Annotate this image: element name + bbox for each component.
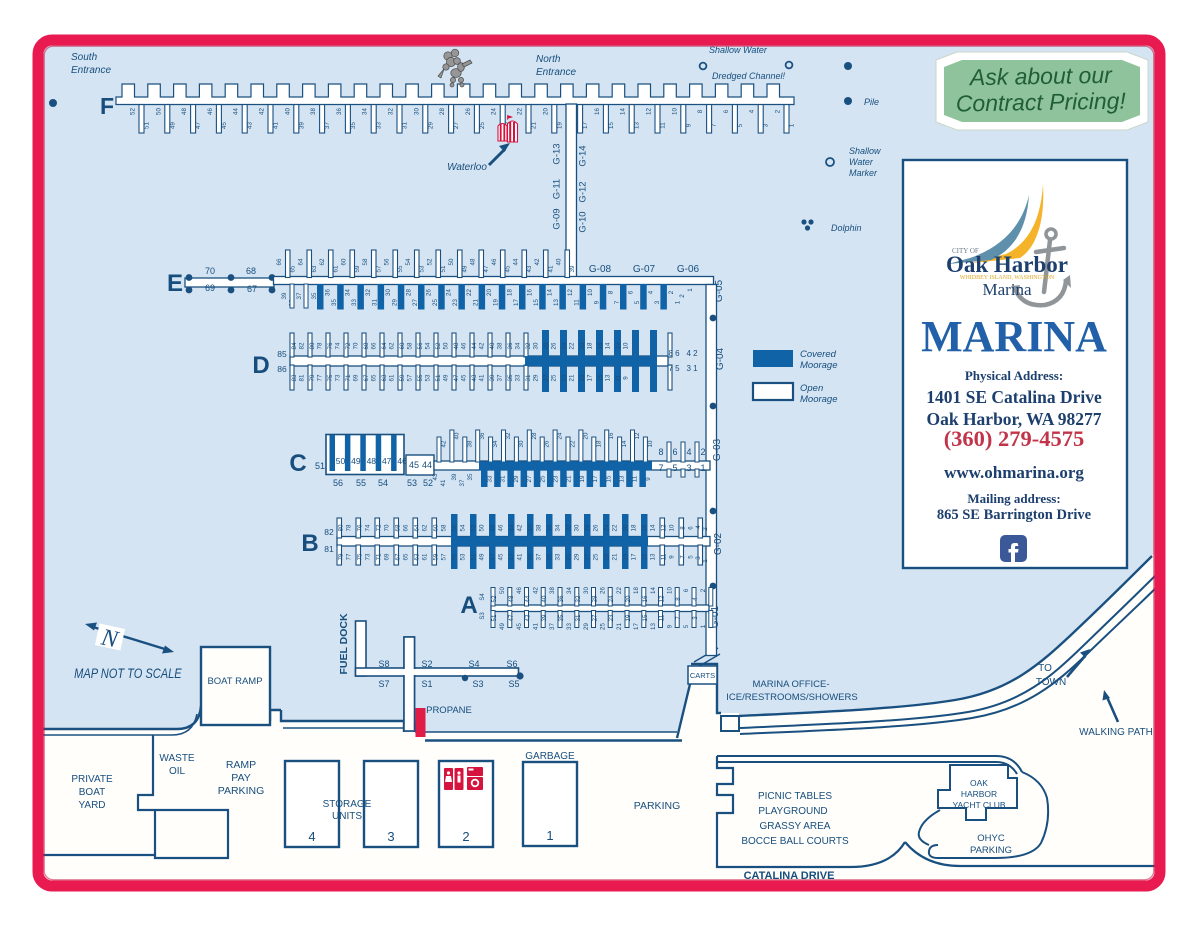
svg-text:39: 39 — [489, 374, 496, 381]
svg-text:17: 17 — [513, 299, 520, 306]
svg-text:17: 17 — [592, 475, 599, 482]
svg-text:64: 64 — [414, 524, 421, 531]
svg-text:23: 23 — [604, 553, 611, 560]
svg-text:ICE/RESTROOMS/SHOWERS: ICE/RESTROOMS/SHOWERS — [726, 692, 857, 703]
svg-text:55: 55 — [417, 374, 424, 381]
svg-text:39: 39 — [298, 122, 305, 129]
svg-text:37: 37 — [497, 374, 504, 381]
svg-text:62: 62 — [319, 258, 326, 265]
svg-text:56: 56 — [417, 342, 424, 349]
svg-text:7: 7 — [680, 555, 687, 559]
svg-text:TO: TO — [1038, 663, 1052, 674]
svg-text:22: 22 — [517, 108, 524, 115]
svg-text:6: 6 — [672, 447, 677, 457]
svg-text:G-13: G-13 — [552, 143, 563, 164]
svg-text:24: 24 — [608, 595, 615, 602]
svg-text:47: 47 — [453, 374, 460, 381]
svg-text:64: 64 — [298, 258, 305, 265]
svg-text:64: 64 — [381, 342, 388, 349]
svg-text:33: 33 — [555, 553, 562, 560]
svg-text:G-04: G-04 — [715, 347, 726, 370]
svg-text:56: 56 — [452, 524, 459, 531]
svg-text:26: 26 — [544, 440, 551, 447]
svg-text:11: 11 — [659, 614, 666, 621]
svg-text:32: 32 — [388, 108, 395, 115]
svg-text:1: 1 — [546, 828, 553, 843]
svg-text:29: 29 — [392, 299, 399, 306]
svg-text:60: 60 — [399, 342, 406, 349]
svg-text:34: 34 — [492, 440, 499, 447]
svg-text:2: 2 — [775, 109, 782, 113]
svg-text:2: 2 — [700, 588, 707, 592]
svg-text:81: 81 — [324, 544, 334, 554]
svg-text:17: 17 — [582, 122, 589, 129]
svg-text:48: 48 — [181, 108, 188, 115]
svg-text:33: 33 — [566, 623, 573, 630]
svg-text:58: 58 — [407, 342, 414, 349]
svg-text:26: 26 — [593, 524, 600, 531]
svg-text:12: 12 — [615, 342, 622, 349]
svg-text:83: 83 — [291, 374, 298, 381]
svg-text:82: 82 — [299, 342, 306, 349]
svg-text:Ask about our: Ask about our — [968, 62, 1114, 91]
svg-text:FUEL DOCK: FUEL DOCK — [338, 613, 350, 674]
svg-text:42: 42 — [517, 524, 524, 531]
svg-text:30: 30 — [574, 524, 581, 531]
svg-text:31: 31 — [402, 122, 409, 129]
svg-text:Open: Open — [800, 383, 823, 394]
svg-text:61: 61 — [333, 265, 340, 272]
svg-text:WALKING PATH: WALKING PATH — [1079, 727, 1153, 738]
svg-text:12: 12 — [646, 108, 653, 115]
svg-text:YARD: YARD — [78, 800, 105, 811]
svg-text:PARKING: PARKING — [634, 800, 680, 812]
svg-text:MAP NOT TO SCALE: MAP NOT TO SCALE — [74, 666, 182, 681]
svg-text:62: 62 — [422, 524, 429, 531]
svg-text:2: 2 — [679, 294, 686, 298]
svg-text:54: 54 — [405, 258, 412, 265]
svg-text:28: 28 — [592, 595, 599, 602]
svg-text:E: E — [167, 270, 183, 297]
svg-text:11: 11 — [615, 374, 622, 381]
svg-text:28: 28 — [439, 108, 446, 115]
svg-text:30: 30 — [518, 440, 525, 447]
svg-text:20: 20 — [582, 432, 589, 439]
svg-text:40: 40 — [541, 595, 548, 602]
svg-text:45: 45 — [221, 122, 228, 129]
svg-text:42: 42 — [533, 587, 540, 594]
svg-text:31: 31 — [566, 553, 573, 560]
svg-text:50: 50 — [479, 524, 486, 531]
svg-text:31: 31 — [575, 614, 582, 621]
svg-text:GARBAGE: GARBAGE — [525, 751, 575, 762]
svg-text:57: 57 — [407, 374, 414, 381]
svg-text:HARBOR: HARBOR — [961, 789, 997, 799]
svg-text:40: 40 — [489, 342, 496, 349]
svg-text:35: 35 — [350, 122, 357, 129]
svg-text:43: 43 — [432, 473, 439, 480]
svg-text:47: 47 — [490, 553, 497, 560]
svg-text:9: 9 — [594, 300, 601, 304]
svg-text:13: 13 — [650, 623, 657, 630]
svg-text:36: 36 — [507, 342, 514, 349]
svg-text:55: 55 — [356, 478, 366, 488]
svg-text:51: 51 — [491, 614, 498, 621]
svg-text:38: 38 — [536, 524, 543, 531]
svg-text:21: 21 — [472, 299, 479, 306]
svg-text:1: 1 — [700, 624, 707, 628]
svg-text:38: 38 — [466, 440, 473, 447]
svg-text:12: 12 — [567, 289, 574, 296]
svg-text:39: 39 — [541, 614, 548, 621]
svg-text:63: 63 — [311, 265, 318, 272]
svg-text:44: 44 — [471, 342, 478, 349]
svg-text:6: 6 — [683, 588, 690, 592]
svg-text:OIL: OIL — [169, 766, 186, 777]
svg-text:WASTE: WASTE — [159, 753, 195, 764]
svg-text:S3: S3 — [480, 612, 486, 620]
svg-text:47: 47 — [382, 456, 392, 466]
svg-text:35: 35 — [331, 299, 338, 306]
svg-text:18: 18 — [506, 289, 513, 296]
svg-text:North: North — [536, 54, 561, 65]
svg-text:26: 26 — [600, 587, 607, 594]
svg-text:PARKING: PARKING — [970, 845, 1012, 856]
svg-text:70: 70 — [384, 524, 391, 531]
svg-text:76: 76 — [327, 342, 334, 349]
svg-text:14: 14 — [621, 440, 628, 447]
svg-text:40: 40 — [528, 524, 535, 531]
svg-text:20: 20 — [579, 342, 586, 349]
svg-text:39: 39 — [281, 292, 288, 299]
svg-text:35: 35 — [311, 292, 318, 299]
svg-text:66: 66 — [403, 524, 410, 531]
svg-text:44: 44 — [525, 595, 532, 602]
svg-text:C: C — [289, 450, 306, 477]
svg-text:36: 36 — [547, 524, 554, 531]
svg-text:22: 22 — [466, 289, 473, 296]
svg-text:3: 3 — [654, 300, 661, 304]
svg-text:3 1: 3 1 — [686, 364, 698, 373]
svg-text:35: 35 — [467, 473, 474, 480]
svg-text:4: 4 — [648, 290, 655, 294]
svg-text:45: 45 — [461, 374, 468, 381]
svg-text:54: 54 — [378, 478, 388, 488]
svg-text:Moorage: Moorage — [800, 360, 838, 371]
svg-text:3: 3 — [695, 556, 702, 560]
svg-text:65: 65 — [403, 553, 410, 560]
svg-text:Marina: Marina — [982, 280, 1032, 299]
svg-text:47: 47 — [195, 122, 202, 129]
svg-text:11: 11 — [660, 122, 667, 129]
svg-text:8: 8 — [607, 290, 614, 294]
svg-text:23: 23 — [561, 374, 568, 381]
svg-text:Shallow: Shallow — [849, 146, 881, 156]
svg-text:22: 22 — [569, 342, 576, 349]
svg-text:8: 8 — [680, 526, 687, 530]
svg-text:31: 31 — [371, 299, 378, 306]
svg-text:14: 14 — [547, 289, 554, 296]
svg-text:62: 62 — [389, 342, 396, 349]
svg-text:G-07: G-07 — [633, 264, 656, 275]
svg-text:55: 55 — [397, 265, 404, 272]
svg-text:G-08: G-08 — [589, 264, 612, 275]
svg-text:43: 43 — [471, 374, 478, 381]
svg-text:14: 14 — [650, 524, 657, 531]
svg-text:38: 38 — [497, 342, 504, 349]
svg-text:45: 45 — [516, 623, 523, 630]
svg-text:3: 3 — [686, 463, 691, 473]
svg-text:34: 34 — [555, 524, 562, 531]
svg-text:10: 10 — [671, 108, 678, 115]
svg-text:67: 67 — [247, 284, 257, 294]
svg-text:61: 61 — [389, 374, 396, 381]
svg-text:BOAT RAMP: BOAT RAMP — [207, 676, 262, 687]
svg-text:68: 68 — [246, 266, 256, 276]
svg-text:YACHT CLUB: YACHT CLUB — [952, 800, 1005, 810]
svg-text:G-11: G-11 — [552, 179, 563, 199]
svg-text:71: 71 — [376, 553, 383, 560]
svg-text:B: B — [301, 530, 318, 557]
svg-text:16: 16 — [527, 289, 534, 296]
svg-text:TOWN: TOWN — [1036, 677, 1066, 688]
svg-text:7: 7 — [711, 123, 718, 127]
svg-text:37: 37 — [296, 292, 303, 299]
svg-text:55: 55 — [452, 553, 459, 560]
svg-text:50: 50 — [336, 456, 346, 466]
svg-text:16: 16 — [642, 524, 649, 531]
svg-text:27: 27 — [412, 299, 419, 306]
svg-text:G-10: G-10 — [578, 211, 589, 232]
svg-text:33: 33 — [515, 374, 522, 381]
svg-text:28: 28 — [405, 289, 412, 296]
svg-text:S2: S2 — [421, 659, 432, 669]
svg-text:Water: Water — [849, 157, 874, 167]
svg-text:5: 5 — [672, 463, 677, 473]
svg-text:27: 27 — [453, 122, 460, 129]
svg-text:2: 2 — [702, 527, 709, 531]
svg-text:40: 40 — [556, 258, 563, 265]
svg-text:49: 49 — [499, 623, 506, 630]
svg-text:31: 31 — [500, 475, 507, 482]
svg-text:45: 45 — [498, 553, 505, 560]
svg-text:48: 48 — [470, 258, 477, 265]
svg-text:GRASSY AREA: GRASSY AREA — [760, 821, 831, 832]
svg-text:20: 20 — [623, 524, 630, 531]
svg-text:18: 18 — [595, 440, 602, 447]
svg-text:74: 74 — [365, 524, 372, 531]
svg-text:20: 20 — [542, 108, 549, 115]
svg-text:36: 36 — [336, 108, 343, 115]
svg-text:26: 26 — [426, 289, 433, 296]
svg-text:41: 41 — [273, 122, 280, 129]
svg-text:5: 5 — [688, 555, 695, 559]
svg-text:4: 4 — [686, 447, 691, 457]
svg-text:19: 19 — [623, 553, 630, 560]
svg-text:25: 25 — [593, 553, 600, 560]
svg-text:23: 23 — [452, 299, 459, 306]
svg-text:32: 32 — [525, 342, 532, 349]
svg-text:4: 4 — [749, 109, 756, 113]
svg-text:Physical Address:: Physical Address: — [965, 368, 1063, 383]
svg-text:65: 65 — [290, 265, 297, 272]
svg-text:5: 5 — [683, 624, 690, 628]
svg-text:17: 17 — [633, 623, 640, 630]
svg-text:68: 68 — [363, 342, 370, 349]
svg-text:41: 41 — [517, 553, 524, 560]
svg-text:37: 37 — [536, 553, 543, 560]
svg-text:74: 74 — [335, 342, 342, 349]
svg-text:10: 10 — [587, 289, 594, 296]
svg-text:36: 36 — [325, 289, 332, 296]
svg-text:Contract Pricing!: Contract Pricing! — [956, 88, 1127, 117]
svg-text:25: 25 — [479, 122, 486, 129]
svg-text:UNITS: UNITS — [332, 811, 362, 822]
svg-text:84: 84 — [291, 342, 298, 349]
svg-text:71: 71 — [345, 374, 352, 381]
svg-text:OAK: OAK — [970, 778, 988, 788]
svg-text:40: 40 — [453, 432, 460, 439]
svg-text:80: 80 — [338, 524, 345, 531]
svg-text:49: 49 — [462, 265, 469, 272]
svg-text:11: 11 — [573, 299, 580, 306]
svg-text:10: 10 — [623, 342, 630, 349]
svg-text:63: 63 — [414, 553, 421, 560]
svg-text:5: 5 — [737, 123, 744, 127]
svg-text:12: 12 — [659, 595, 666, 602]
svg-text:9: 9 — [669, 555, 676, 559]
svg-text:(360) 279-4575: (360) 279-4575 — [944, 426, 1085, 451]
svg-text:S4: S4 — [468, 659, 479, 669]
svg-text:4: 4 — [308, 829, 315, 844]
svg-text:47: 47 — [483, 265, 490, 272]
svg-text:27: 27 — [543, 374, 550, 381]
svg-text:21: 21 — [566, 475, 573, 482]
svg-text:14: 14 — [620, 108, 627, 115]
svg-text:43: 43 — [509, 553, 516, 560]
svg-text:23: 23 — [608, 614, 615, 621]
svg-text:Pile: Pile — [864, 97, 879, 107]
svg-text:6: 6 — [688, 526, 695, 530]
svg-text:70: 70 — [353, 342, 360, 349]
svg-text:23: 23 — [553, 475, 560, 482]
svg-text:G-06: G-06 — [677, 264, 700, 275]
svg-text:PROPANE: PROPANE — [426, 705, 472, 716]
svg-text:60: 60 — [341, 258, 348, 265]
svg-text:58: 58 — [441, 524, 448, 531]
svg-text:42: 42 — [534, 258, 541, 265]
svg-text:25: 25 — [432, 299, 439, 306]
svg-text:9: 9 — [623, 376, 630, 380]
svg-text:PAY: PAY — [231, 772, 250, 784]
svg-text:48: 48 — [490, 524, 497, 531]
svg-text:9: 9 — [645, 477, 652, 481]
svg-text:12: 12 — [661, 524, 668, 531]
svg-text:G-14: G-14 — [578, 145, 589, 166]
svg-text:15: 15 — [597, 374, 604, 381]
svg-text:53: 53 — [419, 265, 426, 272]
svg-text:21: 21 — [569, 374, 576, 381]
svg-text:36: 36 — [479, 432, 486, 439]
svg-text:3: 3 — [692, 616, 699, 620]
svg-text:Dredged Channel!: Dredged Channel! — [712, 71, 786, 81]
svg-text:16: 16 — [642, 595, 649, 602]
svg-text:27: 27 — [585, 553, 592, 560]
svg-text:52: 52 — [471, 524, 478, 531]
svg-text:30: 30 — [385, 289, 392, 296]
svg-text:46: 46 — [498, 524, 505, 531]
svg-text:15: 15 — [605, 475, 612, 482]
svg-text:29: 29 — [533, 374, 540, 381]
svg-text:51: 51 — [144, 122, 151, 129]
svg-text:6: 6 — [723, 109, 730, 113]
svg-text:24: 24 — [604, 524, 611, 531]
svg-text:43: 43 — [526, 265, 533, 272]
svg-text:37: 37 — [459, 479, 466, 486]
svg-text:46: 46 — [207, 108, 214, 115]
svg-text:46: 46 — [491, 258, 498, 265]
svg-text:29: 29 — [574, 553, 581, 560]
svg-text:44: 44 — [509, 524, 516, 531]
svg-text:South: South — [71, 52, 98, 63]
svg-text:8: 8 — [658, 447, 663, 457]
svg-text:49: 49 — [169, 122, 176, 129]
svg-text:STORAGE: STORAGE — [323, 799, 372, 810]
svg-text:15: 15 — [642, 553, 649, 560]
svg-text:42: 42 — [479, 342, 486, 349]
svg-text:865 SE Barrington Drive: 865 SE Barrington Drive — [937, 507, 1092, 523]
svg-text:3: 3 — [763, 123, 770, 127]
svg-text:44: 44 — [233, 108, 240, 115]
svg-text:59: 59 — [399, 374, 406, 381]
svg-text:10: 10 — [667, 587, 674, 594]
svg-text:39: 39 — [528, 553, 535, 560]
svg-text:2: 2 — [668, 290, 675, 294]
svg-text:25: 25 — [551, 374, 558, 381]
svg-text:3: 3 — [387, 829, 394, 844]
svg-text:S4: S4 — [480, 593, 486, 601]
svg-text:22: 22 — [570, 440, 577, 447]
svg-text:51: 51 — [315, 461, 325, 471]
svg-text:36: 36 — [558, 595, 565, 602]
svg-text:73: 73 — [365, 553, 372, 560]
svg-text:76: 76 — [357, 524, 364, 531]
svg-text:G-09: G-09 — [552, 208, 563, 229]
svg-text:41: 41 — [479, 374, 486, 381]
svg-text:12: 12 — [634, 432, 641, 439]
svg-text:79: 79 — [309, 374, 316, 381]
svg-text:46: 46 — [516, 587, 523, 594]
svg-text:A: A — [460, 592, 477, 619]
svg-text:13: 13 — [650, 553, 657, 560]
svg-text:50: 50 — [499, 587, 506, 594]
svg-text:19: 19 — [493, 299, 500, 306]
svg-text:22: 22 — [616, 587, 623, 594]
svg-text:77: 77 — [346, 553, 353, 560]
svg-text:34: 34 — [362, 108, 369, 115]
svg-text:PLAYGROUND: PLAYGROUND — [758, 806, 827, 817]
svg-text:5: 5 — [634, 300, 641, 304]
svg-text:54: 54 — [460, 524, 467, 531]
svg-text:32: 32 — [566, 524, 573, 531]
svg-text:6: 6 — [628, 290, 635, 294]
svg-text:9: 9 — [685, 123, 692, 127]
svg-text:57: 57 — [441, 553, 448, 560]
svg-text:Covered: Covered — [800, 349, 837, 360]
svg-text:49: 49 — [443, 374, 450, 381]
svg-text:S7: S7 — [378, 679, 389, 689]
svg-text:75: 75 — [357, 553, 364, 560]
